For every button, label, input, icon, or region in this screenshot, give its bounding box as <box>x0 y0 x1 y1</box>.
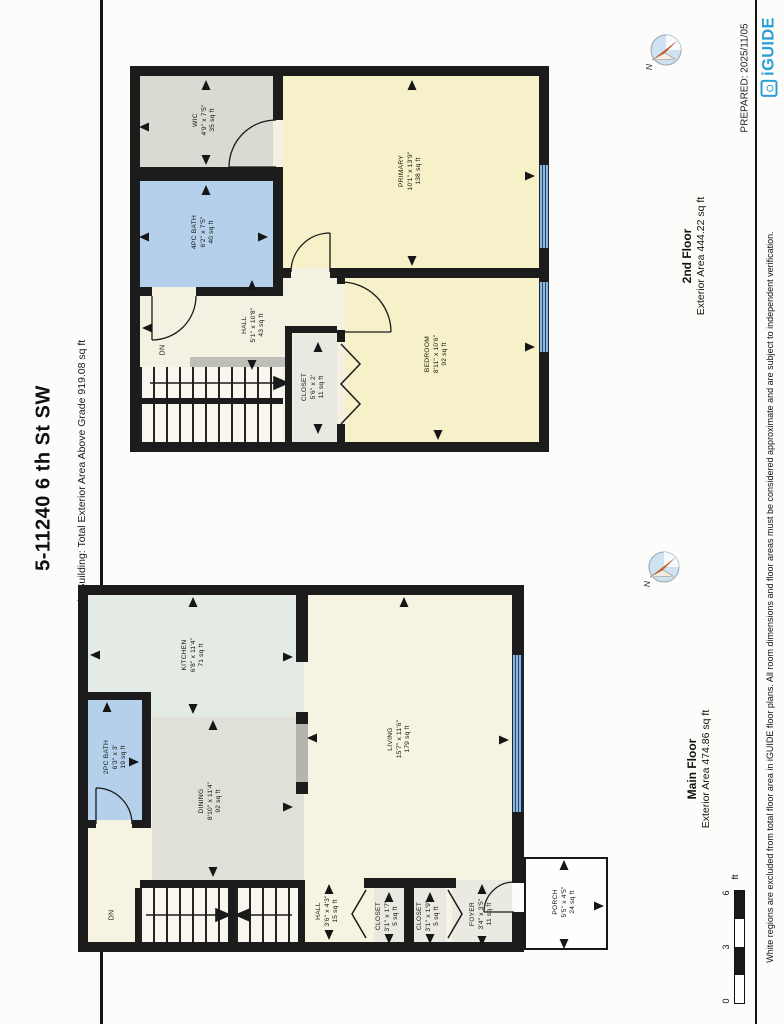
room-label-2pc-bath: 2PC BATH6'3" x 3'19 sq ft <box>103 740 129 774</box>
north-label: N <box>642 581 652 587</box>
iguide-logo-text: iGUIDE <box>760 17 779 76</box>
floor-title-main: Main Floor Exterior Area 474.86 sq ft <box>685 710 713 828</box>
disclaimer-text: White regions are excluded from total fl… <box>765 231 775 962</box>
wall-segment <box>296 782 308 794</box>
right-divider-line <box>755 0 757 1024</box>
wall-segment <box>196 287 283 296</box>
wall-segment <box>330 268 539 278</box>
scale-tick-3: 3 <box>721 944 731 949</box>
wall-segment <box>140 287 152 296</box>
wall-segment <box>539 66 549 452</box>
room-label-porch: PORCH5'5" x 4'5"24 sq ft <box>552 886 578 917</box>
room-label-wic: WIC4'9" x 7'5"35 sq ft <box>192 104 218 135</box>
wall-segment <box>337 424 345 442</box>
room-label-primary: PRIMARY10'1" x 13'9"138 sq ft <box>398 152 424 191</box>
wall-segment <box>140 880 305 888</box>
wall-segment <box>283 268 291 278</box>
wall-segment <box>337 278 345 284</box>
wall-segment <box>132 820 151 828</box>
wall-segment <box>140 167 283 181</box>
floor-plan-page: 5-11240 6 th St SW Main Building: Total … <box>0 0 784 1024</box>
scale-unit: ft <box>730 874 740 879</box>
wall-segment <box>130 66 549 76</box>
room-label-dining: DINING8'10" x 11'4"92 sq ft <box>198 782 224 820</box>
iguide-camera-icon <box>761 80 778 97</box>
wall-segment <box>273 76 283 120</box>
wall-segment <box>273 167 283 296</box>
room-label-4pc-bath: 4PC BATH6'2" x 7'5"40 sq ft <box>191 215 217 249</box>
wall-segment <box>130 442 549 452</box>
room-label-closet-2: CLOSET3'1" x 1'9"5 sq ft <box>416 900 442 931</box>
window <box>539 165 549 248</box>
wall-segment <box>364 878 456 888</box>
wall-segment <box>88 820 96 828</box>
stairs-down-label: DN <box>109 910 116 921</box>
room-label-closet-2nd: CLOSET5'6" x 2'11 sq ft <box>301 373 327 401</box>
window <box>512 655 524 812</box>
scale-tick-0: 0 <box>721 998 731 1003</box>
building-area-note: Main Building: Total Exterior Area Above… <box>76 340 88 616</box>
wall-segment <box>130 66 140 452</box>
prepared-date: PREPARED: 2025/11/05 <box>740 23 751 132</box>
wall-segment <box>228 888 236 942</box>
room-label-hall-main: HALL3'6" x 4'3"15 sq ft <box>315 895 341 926</box>
wall-segment <box>78 942 524 952</box>
wall-segment <box>285 326 337 333</box>
room-label-hall-2nd: HALL5'1" x 10'8"43 sq ft <box>241 308 267 343</box>
stair-landing <box>190 357 290 367</box>
room-label-kitchen: KITCHEN6'8" x 11'4"71 sq ft <box>181 638 207 672</box>
north-label: N <box>644 64 654 70</box>
stairs-down-2nd <box>140 404 283 442</box>
floor-title-2nd: 2nd Floor Exterior Area 444.22 sq ft <box>680 197 708 315</box>
wall-segment <box>142 692 151 828</box>
scale-tick-6: 6 <box>721 890 731 895</box>
wall-segment <box>78 585 88 952</box>
room-label-bedroom: BEDROOM8'11" x 10'6"92 sq ft <box>424 335 450 373</box>
wall-segment <box>88 692 150 700</box>
window <box>539 282 549 352</box>
room-dining <box>152 717 304 880</box>
room-label-foyer: FOYER3'4" x 3'5"11 sq ft <box>469 898 495 929</box>
iguide-logo: iGUIDE <box>760 17 779 97</box>
wall-segment <box>512 912 524 952</box>
wall-segment <box>285 326 292 442</box>
wall-segment <box>296 585 308 662</box>
wall-segment <box>135 888 140 942</box>
stairs-up-label: UP <box>300 905 307 915</box>
wall-segment <box>512 857 524 883</box>
scale-segment <box>735 975 744 1003</box>
cased-opening <box>296 724 308 782</box>
wall-segment <box>404 888 414 942</box>
stairs-down-2nd <box>140 367 283 398</box>
scale-segment <box>735 891 744 919</box>
scale-segment <box>735 947 744 975</box>
wall-segment <box>296 712 308 724</box>
room-label-closet-1: CLOSET3'1" x 1'7"5 sq ft <box>375 900 401 931</box>
stairs-down-label: DN <box>160 345 167 356</box>
stairs-down-run <box>236 888 298 942</box>
wall-segment <box>337 330 345 342</box>
room-label-living: LIVING15'7" x 11'6"179 sq ft <box>387 720 413 758</box>
stairs-up-run <box>140 888 228 942</box>
scale-segment <box>735 919 744 947</box>
address-title: 5-11240 6 th St SW <box>33 385 56 571</box>
scale-bar <box>734 890 745 1004</box>
